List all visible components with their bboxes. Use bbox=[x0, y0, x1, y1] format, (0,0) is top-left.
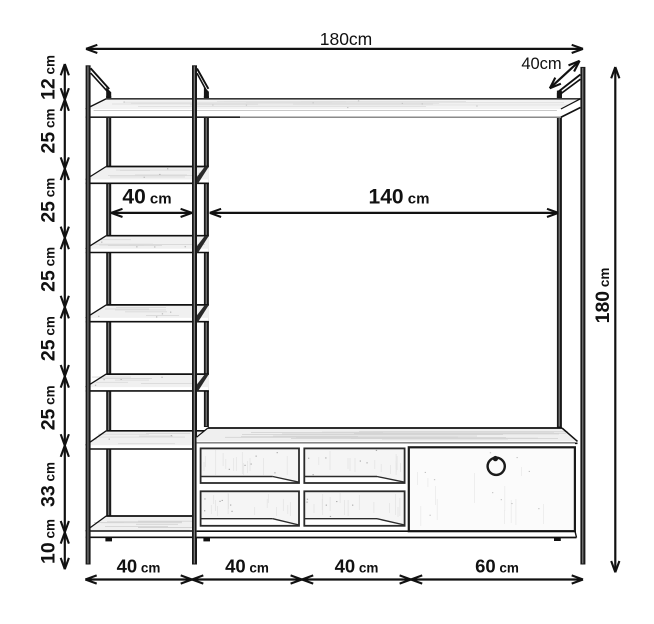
svg-text:180cm: 180cm bbox=[320, 29, 373, 49]
svg-text:40cm: 40cm bbox=[521, 55, 561, 73]
